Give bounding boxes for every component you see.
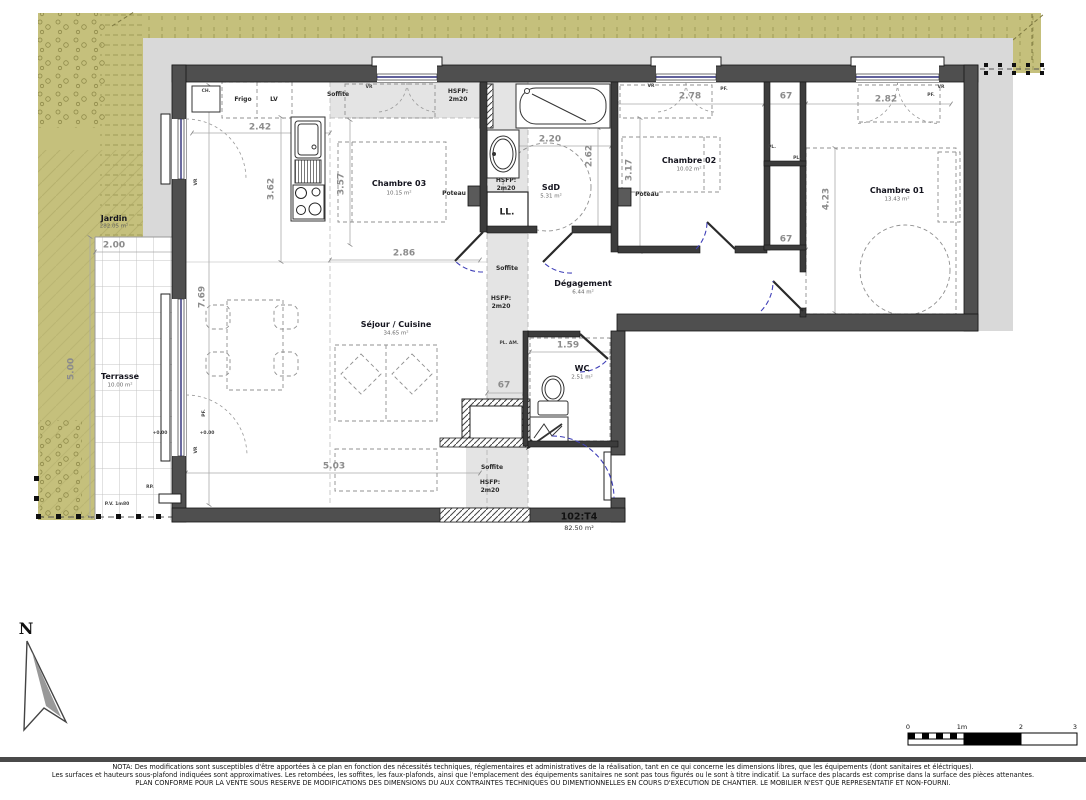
annotation-soffit-1: Soffite	[327, 92, 349, 98]
annotation-level-1: +0.00	[153, 432, 168, 437]
annotation-hsfp-1b: 2m20	[449, 97, 468, 103]
floor-plan-page: Chambre 03 10.15 m² SdD 5.31 m² Chambre …	[0, 0, 1086, 800]
north-letter: N	[19, 621, 34, 637]
annotation-hsfp-4a: HSFP:	[480, 480, 500, 486]
dim-sejour-depth: 7.69	[199, 286, 208, 308]
scale-tick-2: 2	[1019, 724, 1023, 731]
room-label-chambre03: Chambre 03	[372, 180, 426, 188]
annotation-shutter-5: VR	[195, 447, 200, 454]
annotation-level-2: +0.00	[200, 432, 215, 437]
annotation-shutter-3: VR	[938, 86, 945, 91]
annotation-hsfp-4b: 2m20	[481, 488, 500, 494]
rp-box	[159, 494, 181, 503]
room-area-jardin: 282.05 m²	[100, 224, 129, 230]
annotation-soffit-2: Soffite	[496, 266, 518, 272]
dim-ch01-width: 2.82	[875, 96, 897, 105]
note-line-3: PLAN CONFORME POUR LA VENTE SOUS RESERVE…	[0, 780, 1086, 787]
annotation-boiler: CH.	[202, 90, 211, 95]
room-area-degagement: 6.44 m²	[572, 290, 594, 296]
dim-ch03-width: 2.86	[393, 250, 415, 259]
annotation-closet-2: PL.	[793, 157, 801, 162]
dim-ch01-depth: 4.23	[823, 188, 832, 210]
scale-tick-1m: 1m	[957, 724, 967, 731]
annotation-washer: LL.	[500, 209, 515, 218]
annotation-shutter-2: VR	[648, 85, 655, 90]
annotation-fridge: Frigo	[234, 97, 251, 103]
room-label-sdd: SdD	[542, 184, 560, 192]
dim-wc-width: 1.59	[557, 342, 579, 351]
dim-placard-bottom: 67	[780, 236, 793, 245]
room-area-sejour: 34.65 m²	[383, 331, 408, 337]
annotation-rp: RP.	[146, 486, 154, 491]
room-label-chambre02: Chambre 02	[662, 157, 716, 165]
kitchen-fixtures	[192, 86, 325, 221]
annotation-shutter-1: VR	[366, 86, 373, 91]
room-area-chambre03: 10.15 m²	[386, 191, 411, 197]
annotation-window-2: PF.	[927, 94, 934, 99]
dim-placard-top: 67	[780, 93, 793, 102]
annotation-hsfp-2a: HSFP:	[496, 178, 516, 184]
annotation-soffit-3: Soffite	[481, 465, 503, 471]
room-area-terrasse: 10.00 m²	[107, 383, 132, 389]
note-line-1: NOTA: Des modifications sont susceptible…	[0, 764, 1086, 771]
dim-terrasse-width: 2.00	[103, 242, 125, 251]
annotation-dishwasher: LV	[270, 97, 278, 103]
annotation-closet-1: PL.	[768, 146, 776, 151]
annotation-hsfp-3b: 2m20	[492, 304, 511, 310]
floor-plan-drawing	[0, 0, 1086, 800]
note-line-2: Les surfaces et hauteurs sous-plafond in…	[0, 772, 1086, 779]
room-area-wc: 2.51 m²	[571, 375, 593, 381]
dim-ch02-depth: 3.17	[626, 159, 635, 181]
dim-sdd-depth: 2.62	[586, 145, 595, 167]
annotation-post-2: Poteau	[635, 192, 659, 198]
annotation-fence: P.V. 1m80	[105, 503, 129, 508]
dim-sejour-width: 5.03	[323, 463, 345, 472]
annotation-post-1: Poteau	[442, 191, 466, 197]
room-label-jardin: Jardin	[101, 215, 127, 223]
room-label-sejour: Séjour / Cuisine	[361, 321, 432, 329]
annotation-hsfp-3a: HSFP:	[491, 296, 511, 302]
dim-kitchen-width: 2.42	[249, 124, 271, 133]
annotation-window-1: PF.	[720, 88, 727, 93]
dim-ch02-width: 2.78	[679, 93, 701, 102]
annotation-hsfp-1a: HSFP:	[448, 89, 468, 95]
annotation-hsfp-2b: 2m20	[497, 186, 516, 192]
annotation-closet-am: PL. AM.	[499, 342, 518, 347]
scale-tick-3: 3	[1073, 724, 1077, 731]
room-label-degagement: Dégagement	[554, 280, 612, 288]
dim-ch03-depth: 3.57	[338, 173, 347, 195]
unit-code: 102:T4	[561, 512, 598, 522]
room-label-terrasse: Terrasse	[101, 373, 139, 381]
dim-kitchen-depth: 3.62	[268, 178, 277, 200]
annotation-window-3: PF.	[203, 409, 208, 416]
room-label-wc: WC	[575, 365, 590, 373]
room-area-chambre02: 10.02 m²	[676, 167, 701, 173]
window-kitchen	[161, 114, 246, 184]
dim-sdd-width: 2.20	[539, 136, 561, 145]
dim-wc-placard: 67	[498, 382, 511, 391]
room-label-chambre01: Chambre 01	[870, 187, 924, 195]
unit-area: 82.50 m²	[564, 525, 594, 532]
footer-rule	[0, 757, 1086, 762]
dim-terrasse-depth: 5.00	[68, 358, 77, 380]
room-area-sdd: 5.31 m²	[540, 194, 562, 200]
window-chambre01	[851, 57, 944, 124]
room-area-chambre01: 13.43 m²	[884, 197, 909, 203]
north-arrow	[24, 641, 66, 730]
scale-tick-0: 0	[906, 724, 910, 731]
annotation-shutter-4: VR	[195, 179, 200, 186]
scale-bar	[908, 733, 1077, 745]
